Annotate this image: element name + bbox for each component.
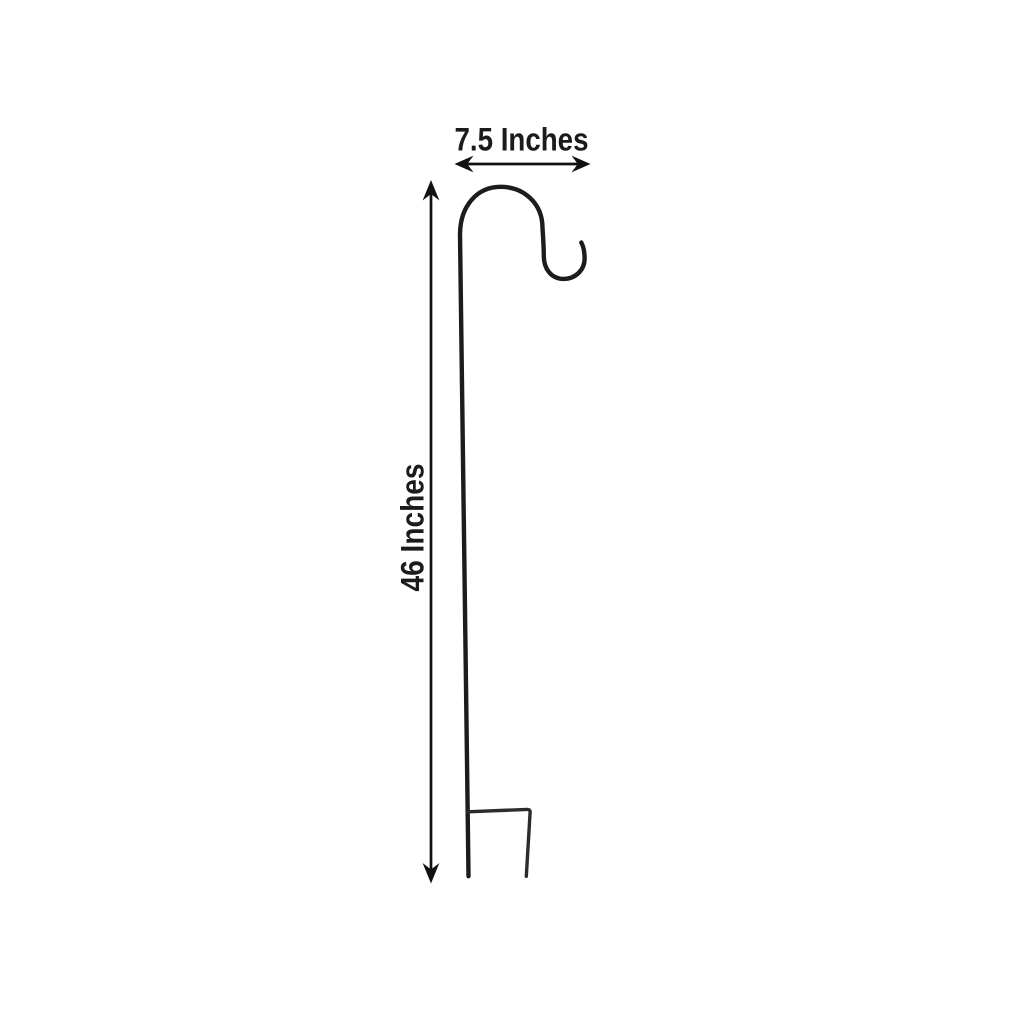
svg-text:46 Inches: 46 Inches xyxy=(395,464,431,592)
svg-text:7.5 Inches: 7.5 Inches xyxy=(455,122,589,158)
